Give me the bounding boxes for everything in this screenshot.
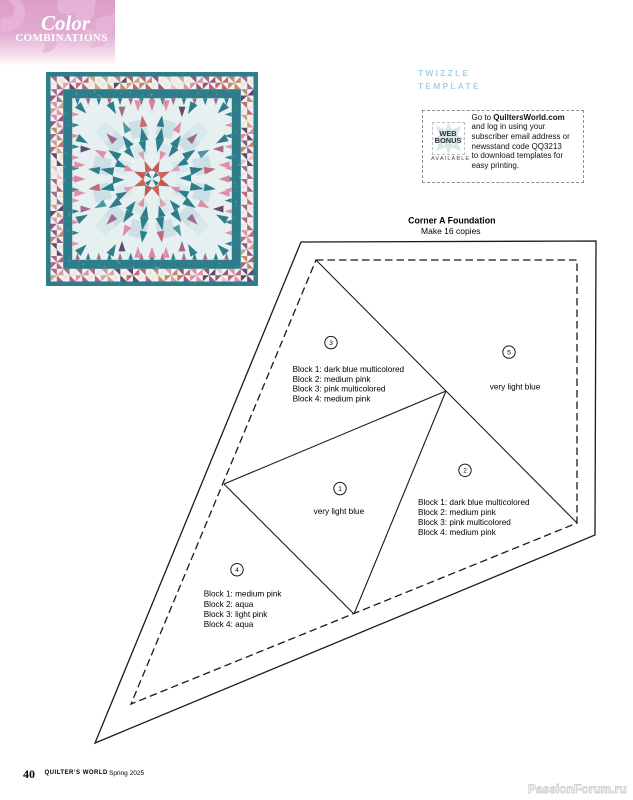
svg-text:Block 4: aqua: Block 4: aqua bbox=[204, 620, 254, 629]
svg-text:Block 2: medium pink: Block 2: medium pink bbox=[418, 508, 497, 517]
svg-text:very light blue: very light blue bbox=[490, 382, 541, 391]
svg-text:5: 5 bbox=[507, 350, 511, 357]
svg-text:Block 3: pink multicolored: Block 3: pink multicolored bbox=[418, 518, 511, 527]
svg-text:Block 1: medium pink: Block 1: medium pink bbox=[204, 590, 283, 599]
svg-text:3: 3 bbox=[329, 340, 333, 347]
svg-text:Block 3: light pink: Block 3: light pink bbox=[204, 610, 269, 619]
svg-text:Block 3: pink multicolored: Block 3: pink multicolored bbox=[293, 385, 386, 394]
svg-text:Block 2: medium pink: Block 2: medium pink bbox=[293, 375, 372, 384]
svg-text:Block 1: dark blue multicolore: Block 1: dark blue multicolored bbox=[293, 365, 405, 374]
svg-text:1: 1 bbox=[338, 486, 342, 493]
svg-text:4: 4 bbox=[235, 567, 239, 574]
svg-text:Block 4: medium pink: Block 4: medium pink bbox=[293, 395, 372, 404]
svg-text:very light blue: very light blue bbox=[314, 507, 365, 516]
svg-text:Block 4: medium pink: Block 4: medium pink bbox=[418, 528, 497, 537]
svg-text:Make 16 copies: Make 16 copies bbox=[421, 226, 481, 236]
svg-text:Corner A Foundation: Corner A Foundation bbox=[408, 215, 495, 225]
svg-text:Block 2: aqua: Block 2: aqua bbox=[204, 600, 254, 609]
svg-text:Block 1: dark blue multicolore: Block 1: dark blue multicolored bbox=[418, 498, 530, 507]
svg-text:2: 2 bbox=[463, 468, 467, 475]
